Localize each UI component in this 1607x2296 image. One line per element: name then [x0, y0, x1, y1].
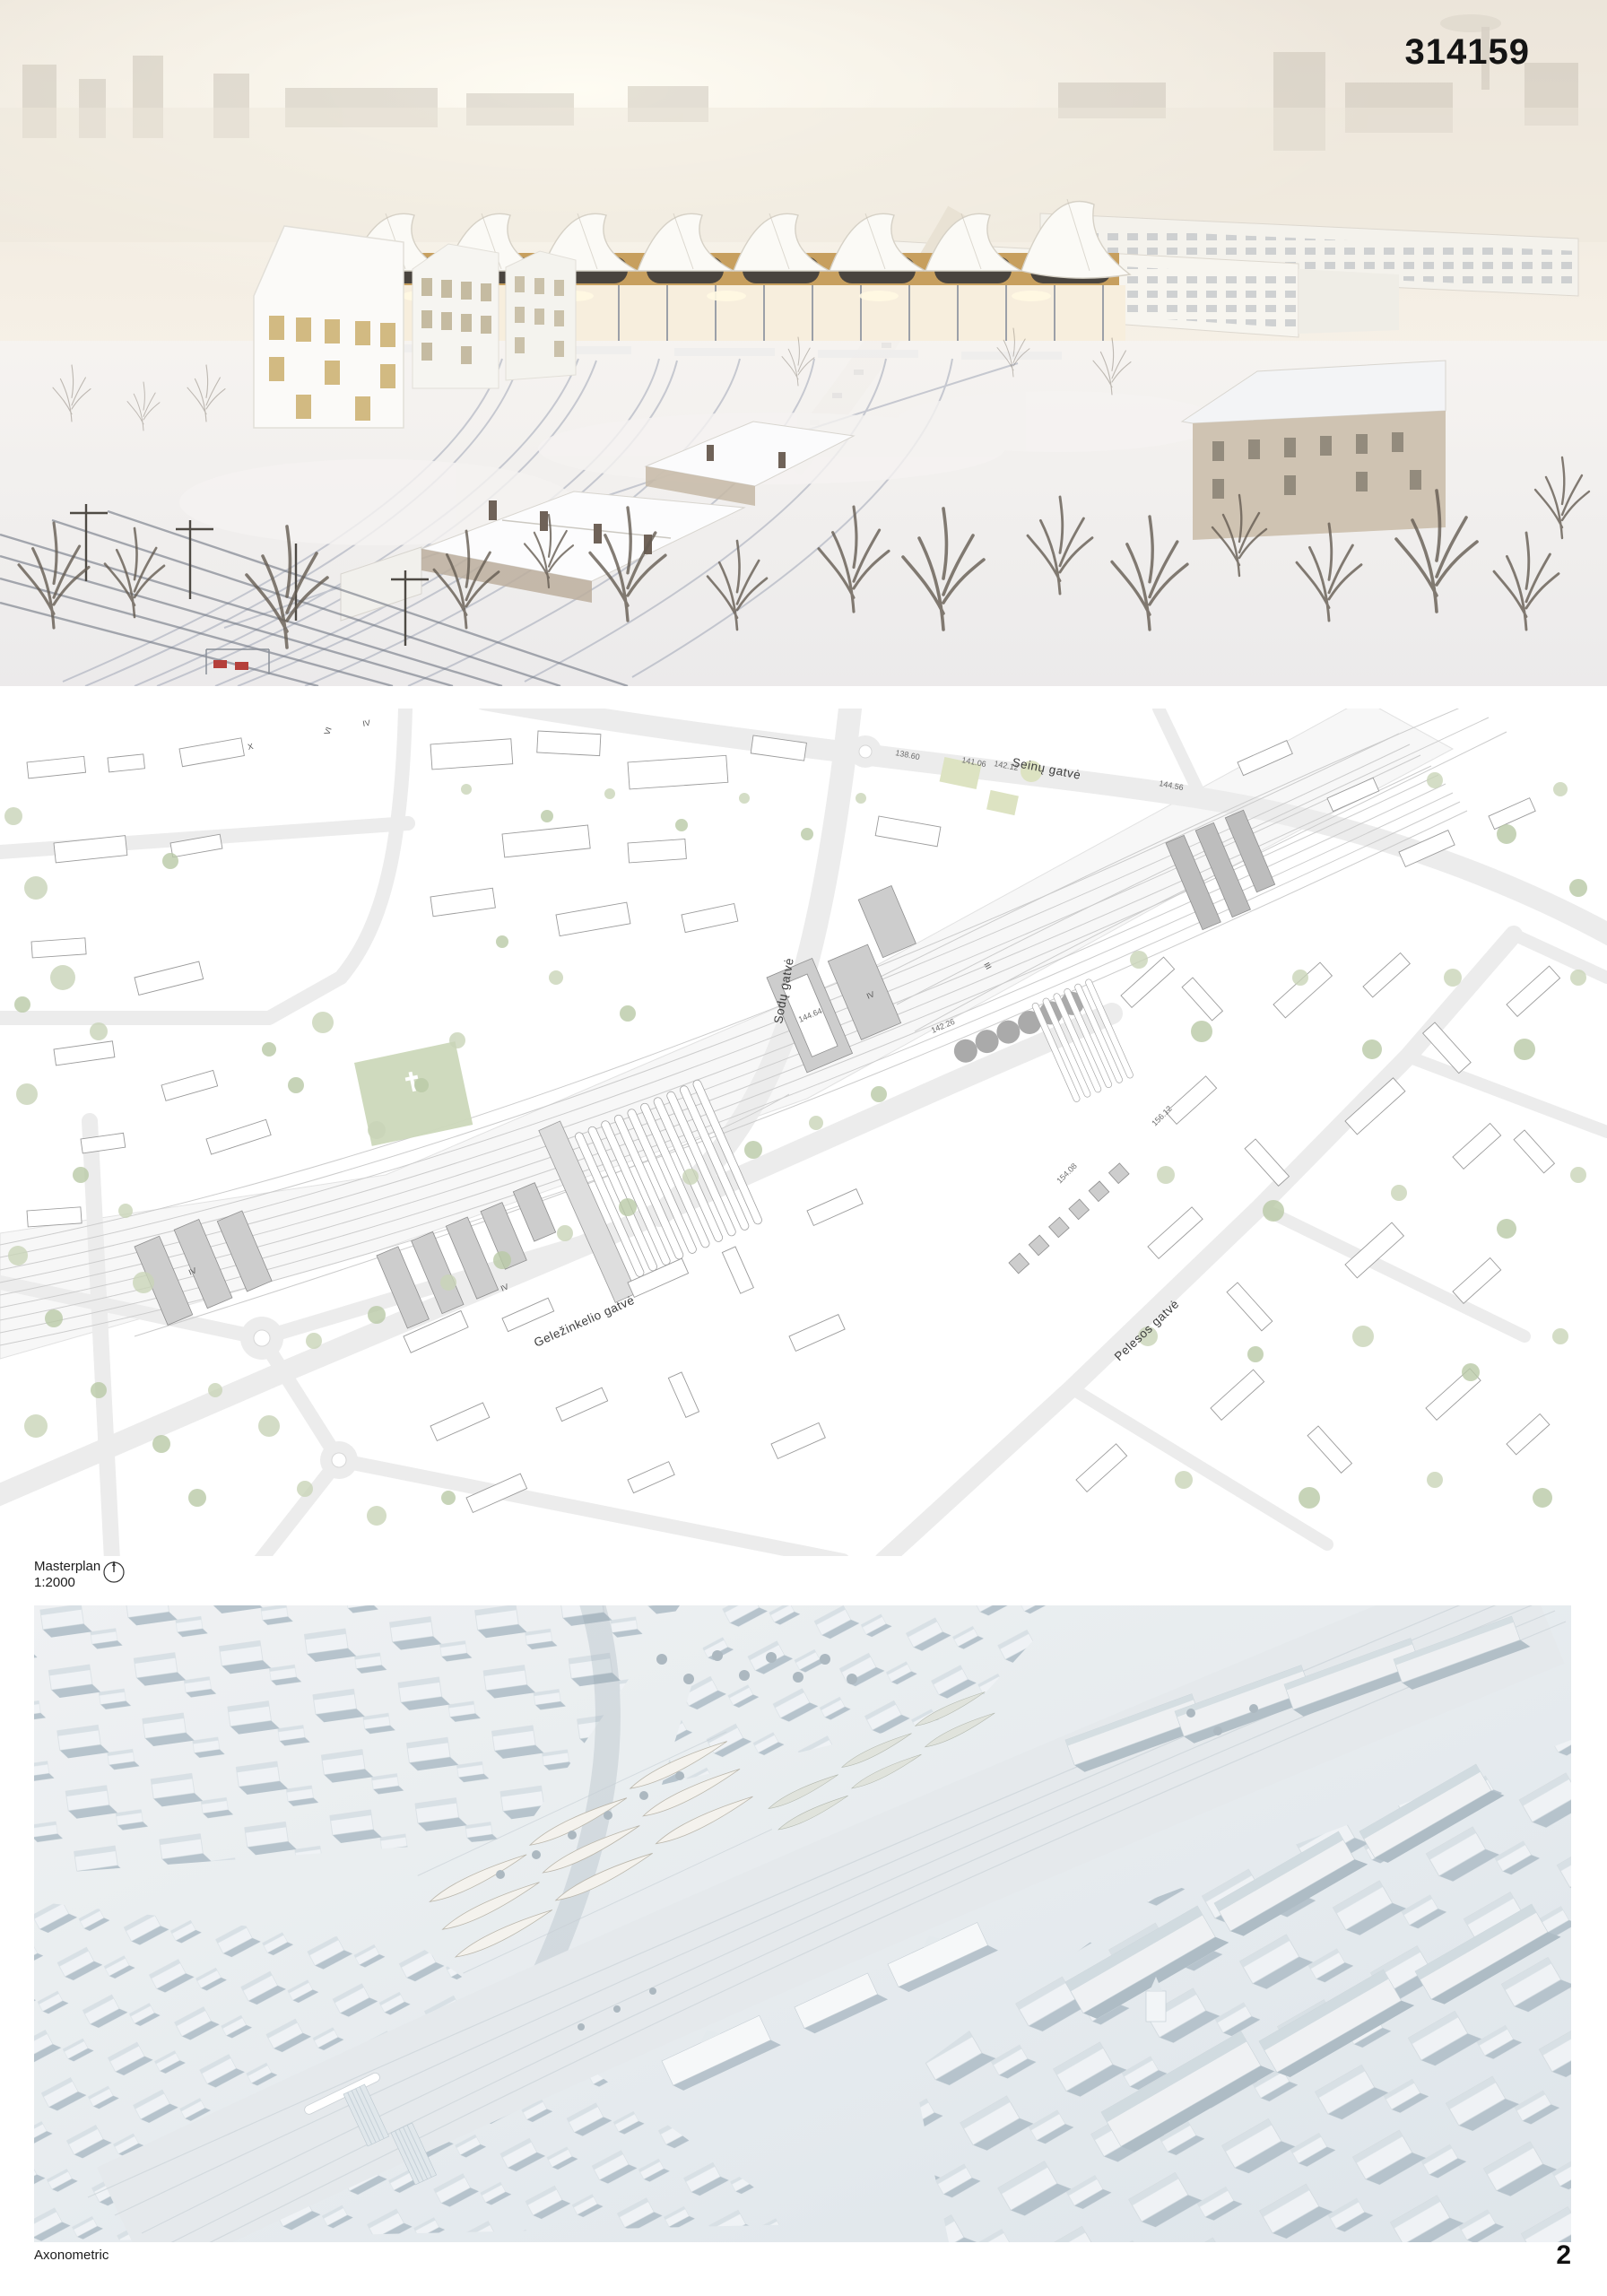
competition-board-page: 314159 [0, 0, 1607, 2296]
north-arrow-icon [100, 1558, 127, 1585]
haze-band [0, 108, 1607, 242]
masterplan-caption: Masterplan 1:2000 [34, 1559, 100, 1591]
smoke-plume [1440, 14, 1501, 32]
axonometric-model-illustration [34, 1605, 1571, 2242]
masterplan-title: Masterplan [34, 1559, 100, 1575]
entry-number: 314159 [1405, 32, 1530, 73]
masterplan-drawing: Seinų gatvė Sodų gatvė Geležinkelio gatv… [0, 709, 1607, 1556]
axonometric-panel [34, 1605, 1571, 2242]
axonometric-caption: Axonometric [34, 2248, 109, 2264]
floor-mark: IV [362, 718, 371, 728]
tenement-wall [1193, 411, 1446, 540]
sheen-overlay [34, 1605, 1571, 2242]
masterplan-scale: 1:2000 [34, 1575, 100, 1591]
aerial-photo-illustration [0, 0, 1607, 686]
page-number: 2 [1556, 2240, 1571, 2271]
aerial-render-panel [0, 0, 1607, 686]
masterplan-panel: Seinų gatvė Sodų gatvė Geležinkelio gatv… [0, 709, 1607, 1556]
